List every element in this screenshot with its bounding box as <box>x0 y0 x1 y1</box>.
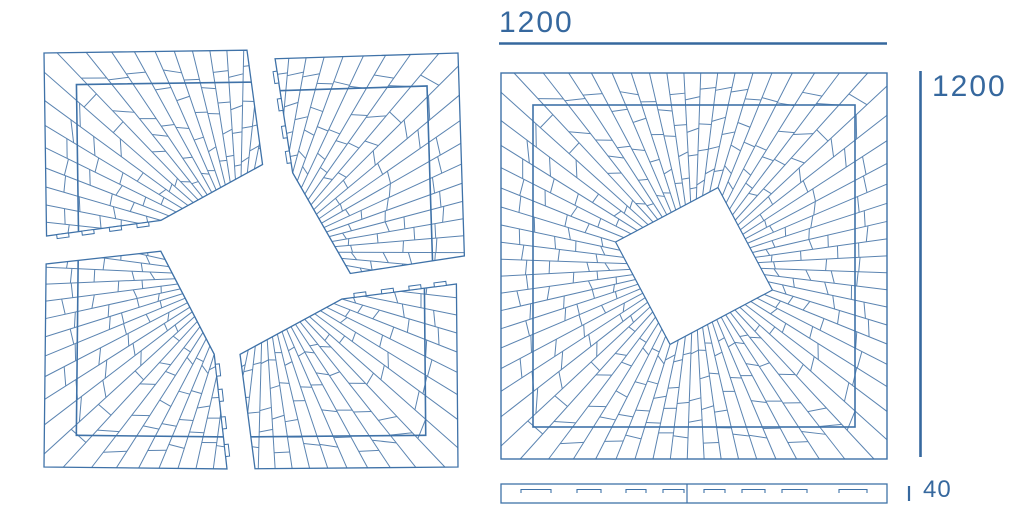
exploded-view <box>44 48 470 471</box>
drawing-canvas <box>0 0 1024 518</box>
width-dimension-label: 1200 <box>499 8 574 38</box>
parquet-panel-technical-drawing: 1200 1200 40 <box>0 0 1024 518</box>
exploded-piece-bottom-left <box>44 81 434 471</box>
assembled-view <box>501 73 887 459</box>
thickness-dimension-label: 40 <box>923 478 952 502</box>
exploded-piece-bottom-right <box>69 81 458 470</box>
exploded-piece-top-right <box>72 53 470 451</box>
profile-view <box>501 484 887 503</box>
height-dimension-label: 1200 <box>932 72 1007 102</box>
